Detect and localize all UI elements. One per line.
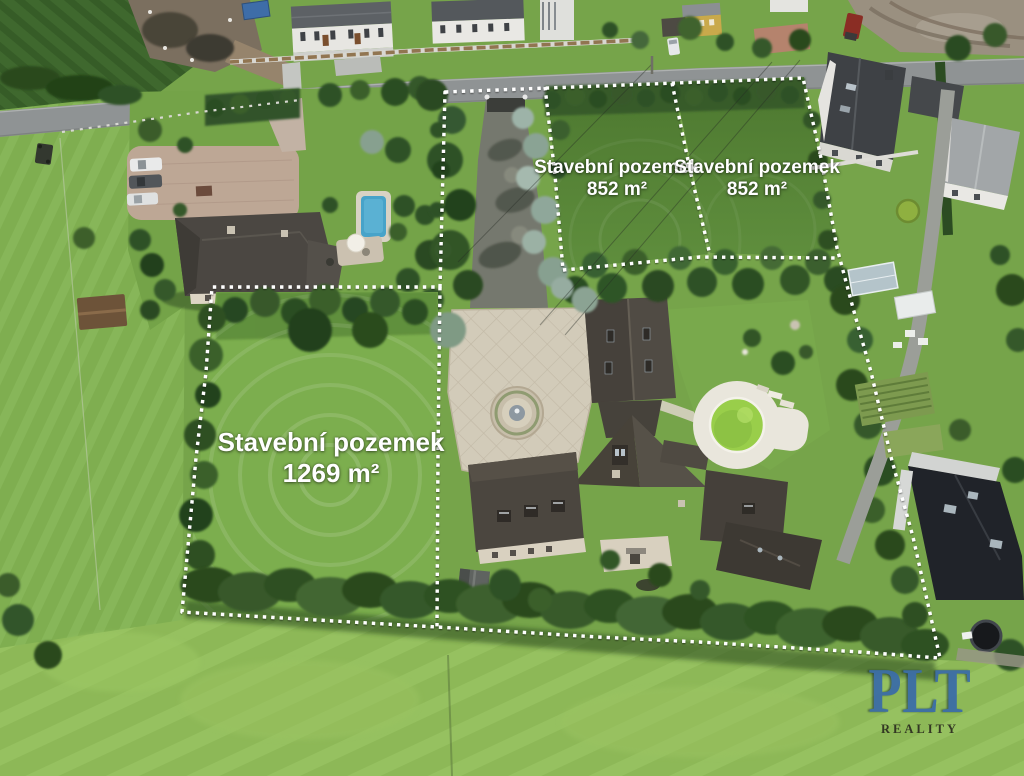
white-duplex-b bbox=[431, 0, 524, 44]
tractor bbox=[35, 143, 54, 165]
plot-title: Stavební pozemek bbox=[206, 427, 456, 458]
lone-tree bbox=[73, 227, 95, 249]
aerial-photo: Stavební pozemek 852 m² Stavební pozemek… bbox=[0, 0, 1024, 776]
white-van bbox=[667, 37, 680, 55]
blue-container bbox=[242, 0, 270, 19]
house-solar-roof bbox=[540, 0, 574, 40]
fountain bbox=[491, 387, 543, 439]
parasol bbox=[347, 234, 365, 252]
trampoline bbox=[971, 621, 1001, 651]
plot-title: Stavební pozemek bbox=[657, 157, 857, 179]
plot-area: 1269 m² bbox=[206, 458, 456, 489]
logo-subtitle-text: REALITY bbox=[858, 722, 982, 737]
plot-label-1269: Stavební pozemek 1269 m² bbox=[206, 427, 456, 489]
watermark-logo: PLT REALITY bbox=[858, 662, 982, 737]
garden-pond bbox=[897, 200, 919, 222]
white-house-top bbox=[770, 0, 808, 12]
logo-brand-text: PLT bbox=[867, 662, 972, 720]
plot-area: 852 m² bbox=[657, 179, 857, 201]
garden-shed bbox=[77, 294, 128, 330]
plot-label-852-right: Stavební pozemek 852 m² bbox=[657, 157, 857, 201]
door-mat bbox=[196, 186, 213, 197]
